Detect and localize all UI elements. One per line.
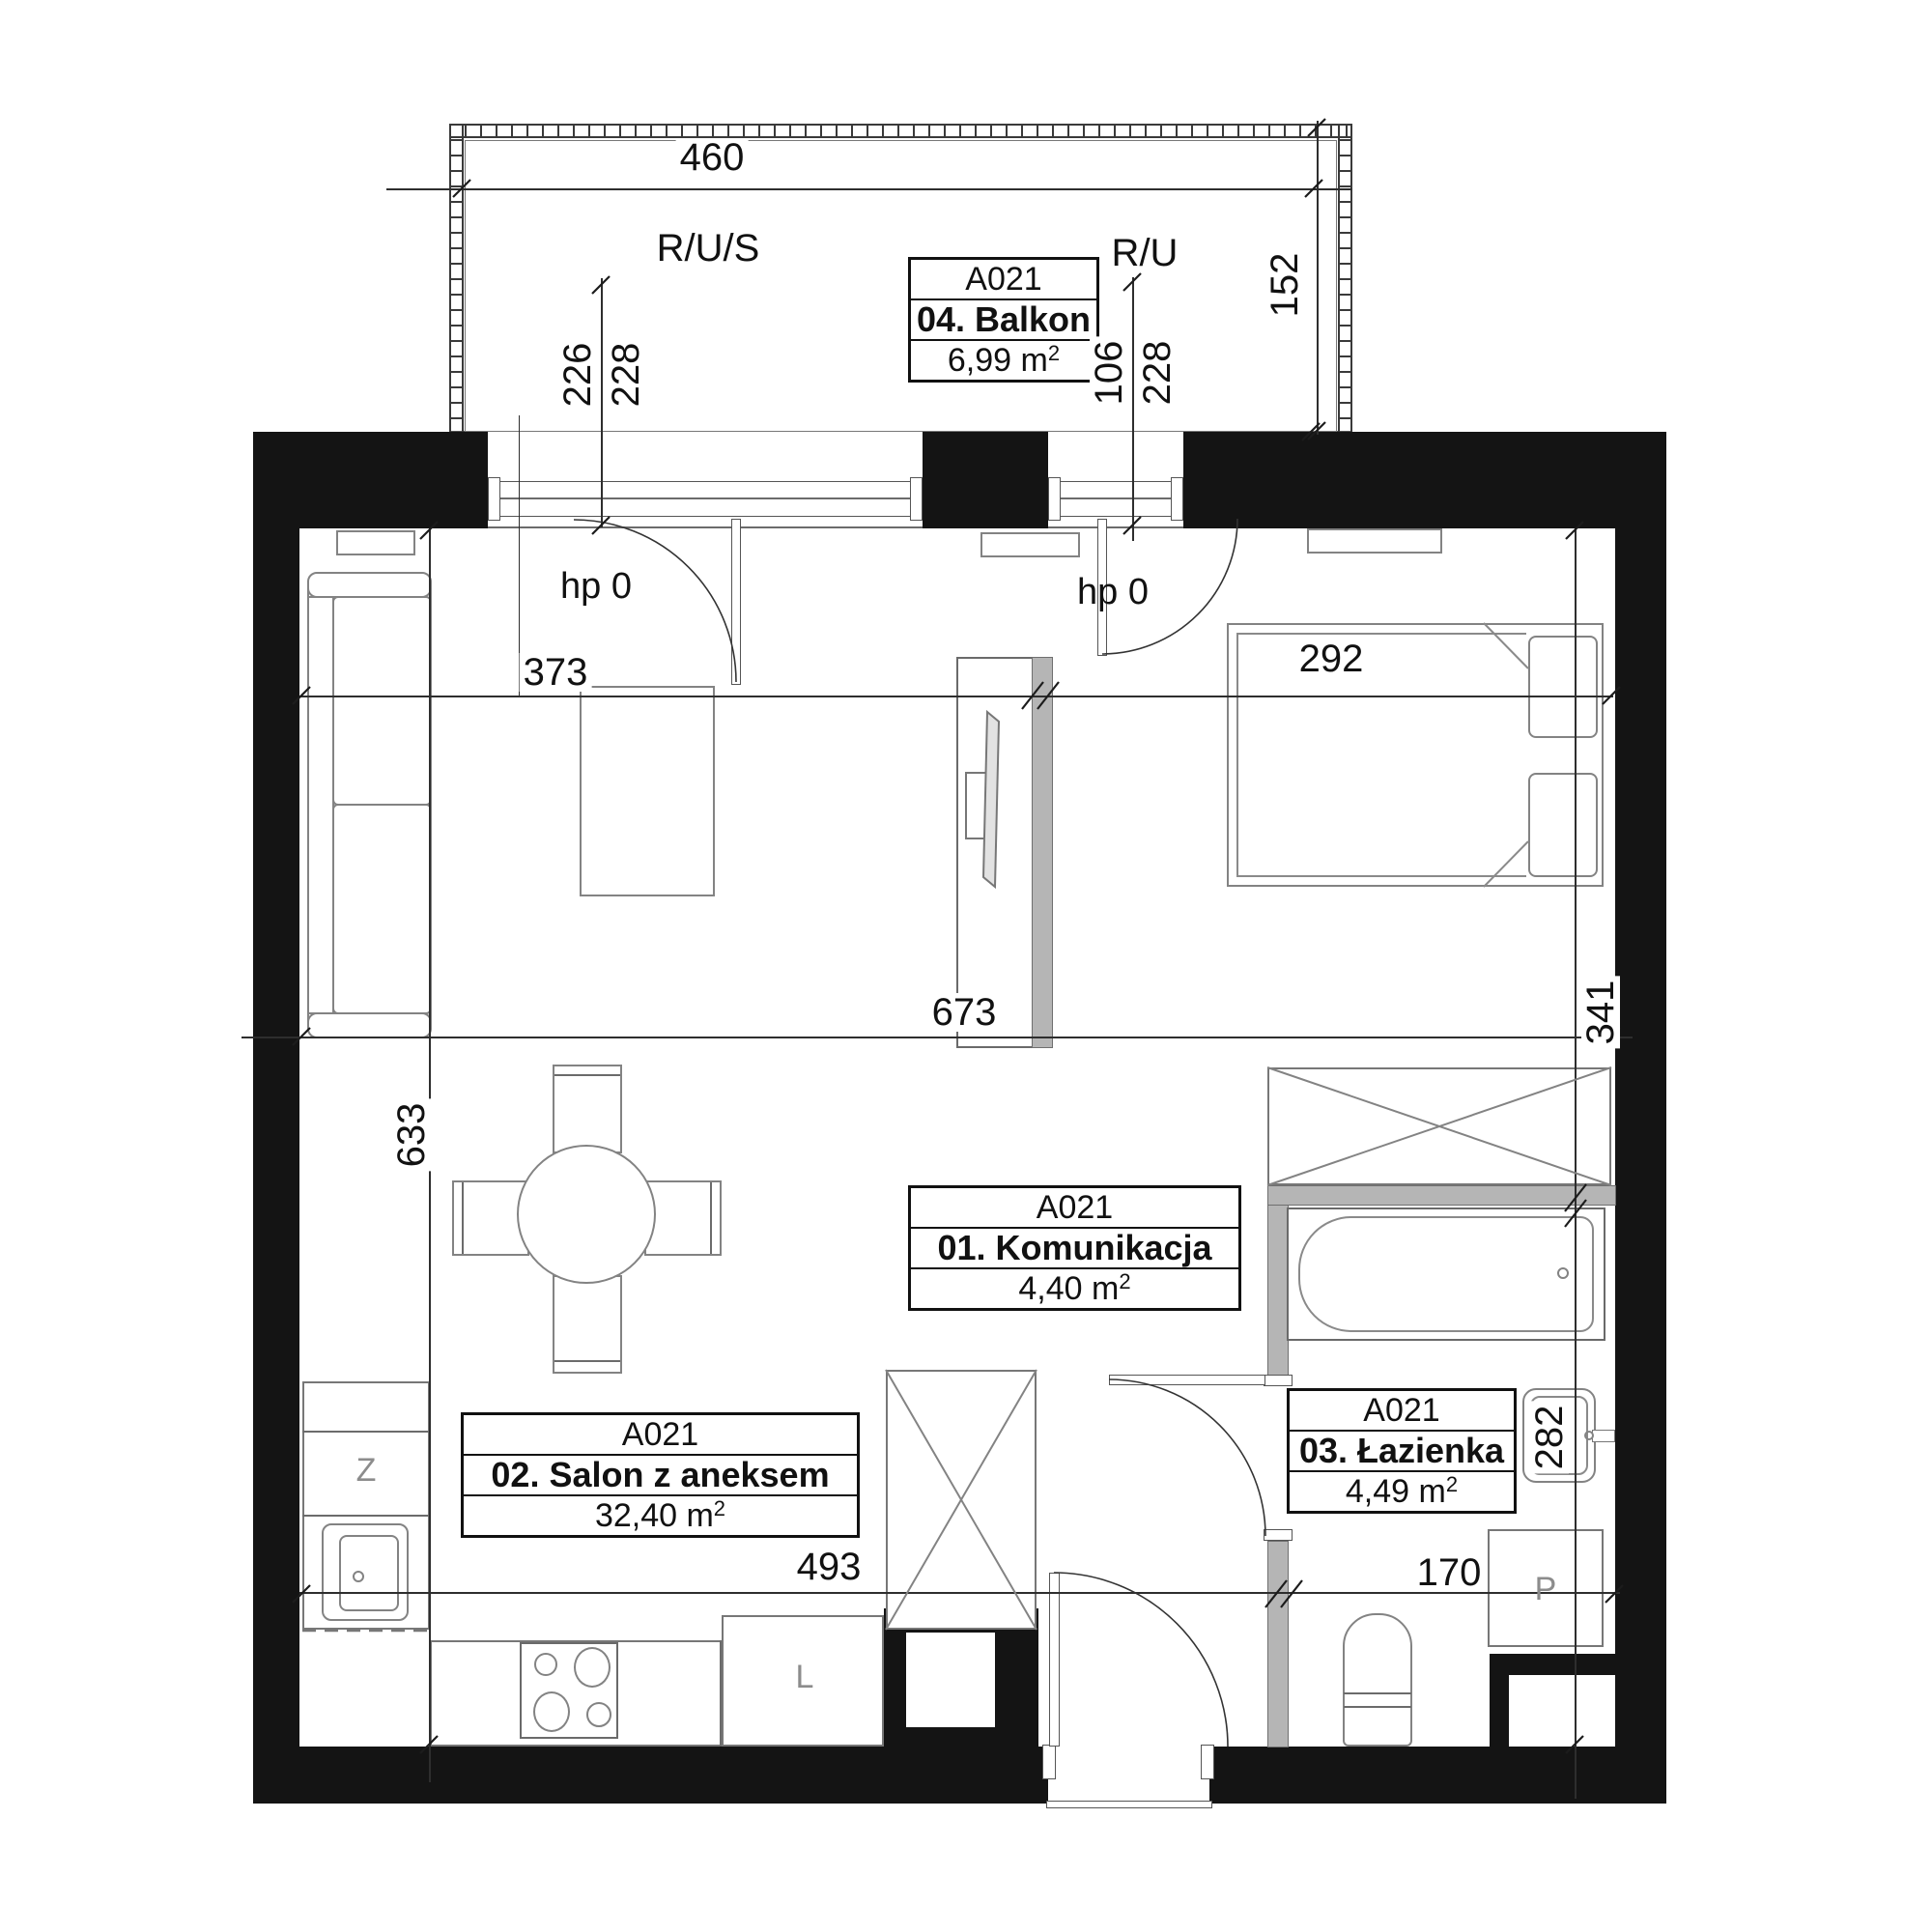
dim-673: 673 bbox=[928, 993, 1001, 1032]
dining-chair-right-back bbox=[710, 1182, 712, 1254]
lazienka-unit: A021 bbox=[1290, 1391, 1514, 1432]
bathroom-jamb-lower bbox=[1264, 1529, 1293, 1541]
bathroom-wall-left-upper bbox=[1267, 1205, 1289, 1377]
salon-area-sup: 2 bbox=[714, 1498, 725, 1520]
balkon-name: 04. Balkon bbox=[911, 300, 1096, 341]
floor-plan-canvas: A021 04. Balkon 6,99 m2 A021 01. Komunik… bbox=[0, 0, 1932, 1932]
window-left-sill bbox=[488, 526, 923, 528]
shaft-middle-void bbox=[906, 1633, 995, 1727]
komunikacja-unit: A021 bbox=[911, 1188, 1238, 1229]
washbasin-faucet bbox=[1592, 1430, 1615, 1442]
dim-106: 106 bbox=[1090, 337, 1128, 410]
kitchen-divider-2 bbox=[302, 1515, 430, 1517]
dim-226: 226 bbox=[558, 339, 597, 412]
bed-mattress-line bbox=[1236, 633, 1526, 877]
balkon-unit: A021 bbox=[911, 260, 1096, 300]
radiator-bedroom-right bbox=[1307, 528, 1442, 554]
balcony-railing-right bbox=[1338, 124, 1352, 432]
toilet-seat-line-1 bbox=[1344, 1692, 1411, 1694]
label-appliance-z: Z bbox=[356, 1454, 377, 1487]
window-right-midline bbox=[1048, 497, 1183, 499]
wall-bottom-left bbox=[253, 1747, 1048, 1804]
wall-bottom-right bbox=[1209, 1747, 1666, 1804]
bed-pillow-2 bbox=[1528, 773, 1598, 877]
dim-633: 633 bbox=[392, 1099, 431, 1172]
dining-chair-top-back bbox=[554, 1074, 620, 1076]
salon-area: 32,40 m2 bbox=[464, 1496, 857, 1535]
balkon-area-sup: 2 bbox=[1048, 343, 1060, 364]
dimline-341-282 bbox=[1575, 528, 1577, 1799]
stove-burner-3 bbox=[533, 1691, 570, 1732]
tv-cabinet bbox=[956, 657, 1034, 1048]
label-appliance-p: P bbox=[1535, 1573, 1557, 1605]
dim-373: 373 bbox=[520, 653, 592, 692]
lazienka-name: 03. Łazienka bbox=[1290, 1432, 1514, 1472]
window-left-jamb-a bbox=[488, 477, 500, 521]
wall-top-right bbox=[1183, 432, 1666, 528]
dim-292: 292 bbox=[1295, 639, 1368, 678]
wall-left bbox=[253, 432, 299, 1804]
bathtub-drain-dot bbox=[1557, 1267, 1569, 1279]
label-riser-right: R/U bbox=[1112, 234, 1179, 272]
label-riser-left: R/U/S bbox=[657, 229, 760, 268]
radiator-living bbox=[336, 530, 415, 555]
toilet bbox=[1343, 1613, 1412, 1747]
kitchen-faucet-dot bbox=[353, 1571, 364, 1582]
dim-282: 282 bbox=[1530, 1402, 1569, 1474]
dim-228-left: 228 bbox=[607, 339, 645, 412]
dim-152: 152 bbox=[1265, 249, 1304, 322]
label-appliance-l: L bbox=[796, 1661, 814, 1693]
wardrobe-bedroom bbox=[1267, 1067, 1611, 1185]
dining-chair-bottom bbox=[553, 1275, 622, 1374]
dimline-460 bbox=[386, 188, 1352, 190]
window-right-jamb-a bbox=[1048, 477, 1061, 521]
stove-burner-4 bbox=[586, 1702, 611, 1727]
bed-pillow-1 bbox=[1528, 636, 1598, 738]
toilet-seat-line-2 bbox=[1344, 1706, 1411, 1708]
dimline-373-292 bbox=[299, 696, 1613, 697]
entrance-threshold bbox=[1046, 1801, 1212, 1808]
shaft-bath-strip bbox=[1490, 1654, 1509, 1748]
label-hp-right: hp 0 bbox=[1077, 574, 1149, 611]
sofa-seat-1 bbox=[332, 596, 432, 806]
entrance-door-leaf bbox=[1049, 1573, 1060, 1747]
room-label-balkon: A021 04. Balkon 6,99 m2 bbox=[908, 257, 1099, 383]
dimline-152 bbox=[1317, 121, 1319, 435]
sofa-seat-2 bbox=[332, 804, 432, 1014]
entrance-jamb-right bbox=[1201, 1745, 1214, 1779]
room-label-lazienka: A021 03. Łazienka 4,49 m2 bbox=[1287, 1388, 1517, 1514]
balcony-railing-top bbox=[449, 124, 1352, 138]
window-left-midline bbox=[488, 497, 923, 499]
sofa-armrest-bottom bbox=[307, 1012, 432, 1038]
window-left-jamb-b bbox=[910, 477, 923, 521]
radiator-bedroom-window bbox=[980, 532, 1080, 557]
balcony-railing-left bbox=[449, 124, 464, 432]
wardrobe-salon bbox=[886, 1370, 1037, 1630]
entrance-jamb-left bbox=[1042, 1745, 1056, 1779]
dim-170: 170 bbox=[1413, 1553, 1486, 1592]
dimline-226-228 bbox=[601, 278, 603, 527]
wall-right bbox=[1615, 432, 1666, 1804]
door-arc-bathroom bbox=[1109, 1379, 1265, 1536]
label-hp-left: hp 0 bbox=[560, 568, 632, 605]
dining-chair-top bbox=[553, 1065, 622, 1153]
kitchen-sink-basin bbox=[339, 1535, 399, 1611]
bathroom-jamb-upper bbox=[1264, 1375, 1293, 1386]
dining-chair-left-back bbox=[462, 1182, 464, 1254]
sofa-armrest-top bbox=[307, 572, 432, 598]
sofa-backrest bbox=[307, 596, 334, 1014]
salon-unit: A021 bbox=[464, 1415, 857, 1456]
dim-493: 493 bbox=[793, 1548, 866, 1586]
balkon-area-value: 6,99 m bbox=[948, 344, 1048, 377]
window-right-sill bbox=[1048, 526, 1183, 528]
coffee-table bbox=[580, 686, 715, 896]
door-arc-entrance bbox=[1054, 1573, 1228, 1747]
dining-table bbox=[517, 1145, 656, 1284]
dim-460: 460 bbox=[676, 138, 749, 177]
bathroom-door-leaf bbox=[1109, 1375, 1265, 1385]
lazienka-area: 4,49 m2 bbox=[1290, 1472, 1514, 1511]
wall-top-middle bbox=[923, 432, 1048, 528]
dining-chair-bottom-back bbox=[554, 1360, 620, 1362]
salon-name: 02. Salon z aneksem bbox=[464, 1456, 857, 1496]
komunikacja-area: 4,40 m2 bbox=[911, 1269, 1238, 1308]
tv-partition-wall bbox=[1032, 657, 1053, 1048]
room-label-komunikacja: A021 01. Komunikacja 4,40 m2 bbox=[908, 1185, 1241, 1311]
bathroom-wall-top bbox=[1267, 1185, 1616, 1206]
stove-burner-1 bbox=[534, 1653, 557, 1676]
komunikacja-area-sup: 2 bbox=[1119, 1271, 1130, 1293]
dimline-106-228 bbox=[1132, 277, 1134, 541]
washbasin-faucet-dot bbox=[1584, 1431, 1594, 1440]
komunikacja-name: 01. Komunikacja bbox=[911, 1229, 1238, 1269]
kitchen-divider-1 bbox=[302, 1431, 430, 1433]
balkon-area: 6,99 m2 bbox=[911, 341, 1096, 380]
lazienka-area-value: 4,49 m bbox=[1346, 1475, 1446, 1508]
room-label-salon: A021 02. Salon z aneksem 32,40 m2 bbox=[461, 1412, 860, 1538]
dim-341: 341 bbox=[1581, 977, 1620, 1049]
dimline-673 bbox=[241, 1037, 1633, 1038]
window-right-jamb-b bbox=[1171, 477, 1183, 521]
salon-area-value: 32,40 m bbox=[595, 1499, 714, 1532]
bathroom-wall-left-lower bbox=[1267, 1541, 1289, 1747]
balcony-door-leaf-left bbox=[731, 519, 741, 685]
dim-228-right: 228 bbox=[1138, 337, 1177, 410]
bathtub-inner bbox=[1298, 1216, 1594, 1332]
stove-burner-2 bbox=[574, 1647, 611, 1688]
lazienka-area-sup: 2 bbox=[1446, 1474, 1458, 1495]
komunikacja-area-value: 4,40 m bbox=[1018, 1272, 1119, 1305]
